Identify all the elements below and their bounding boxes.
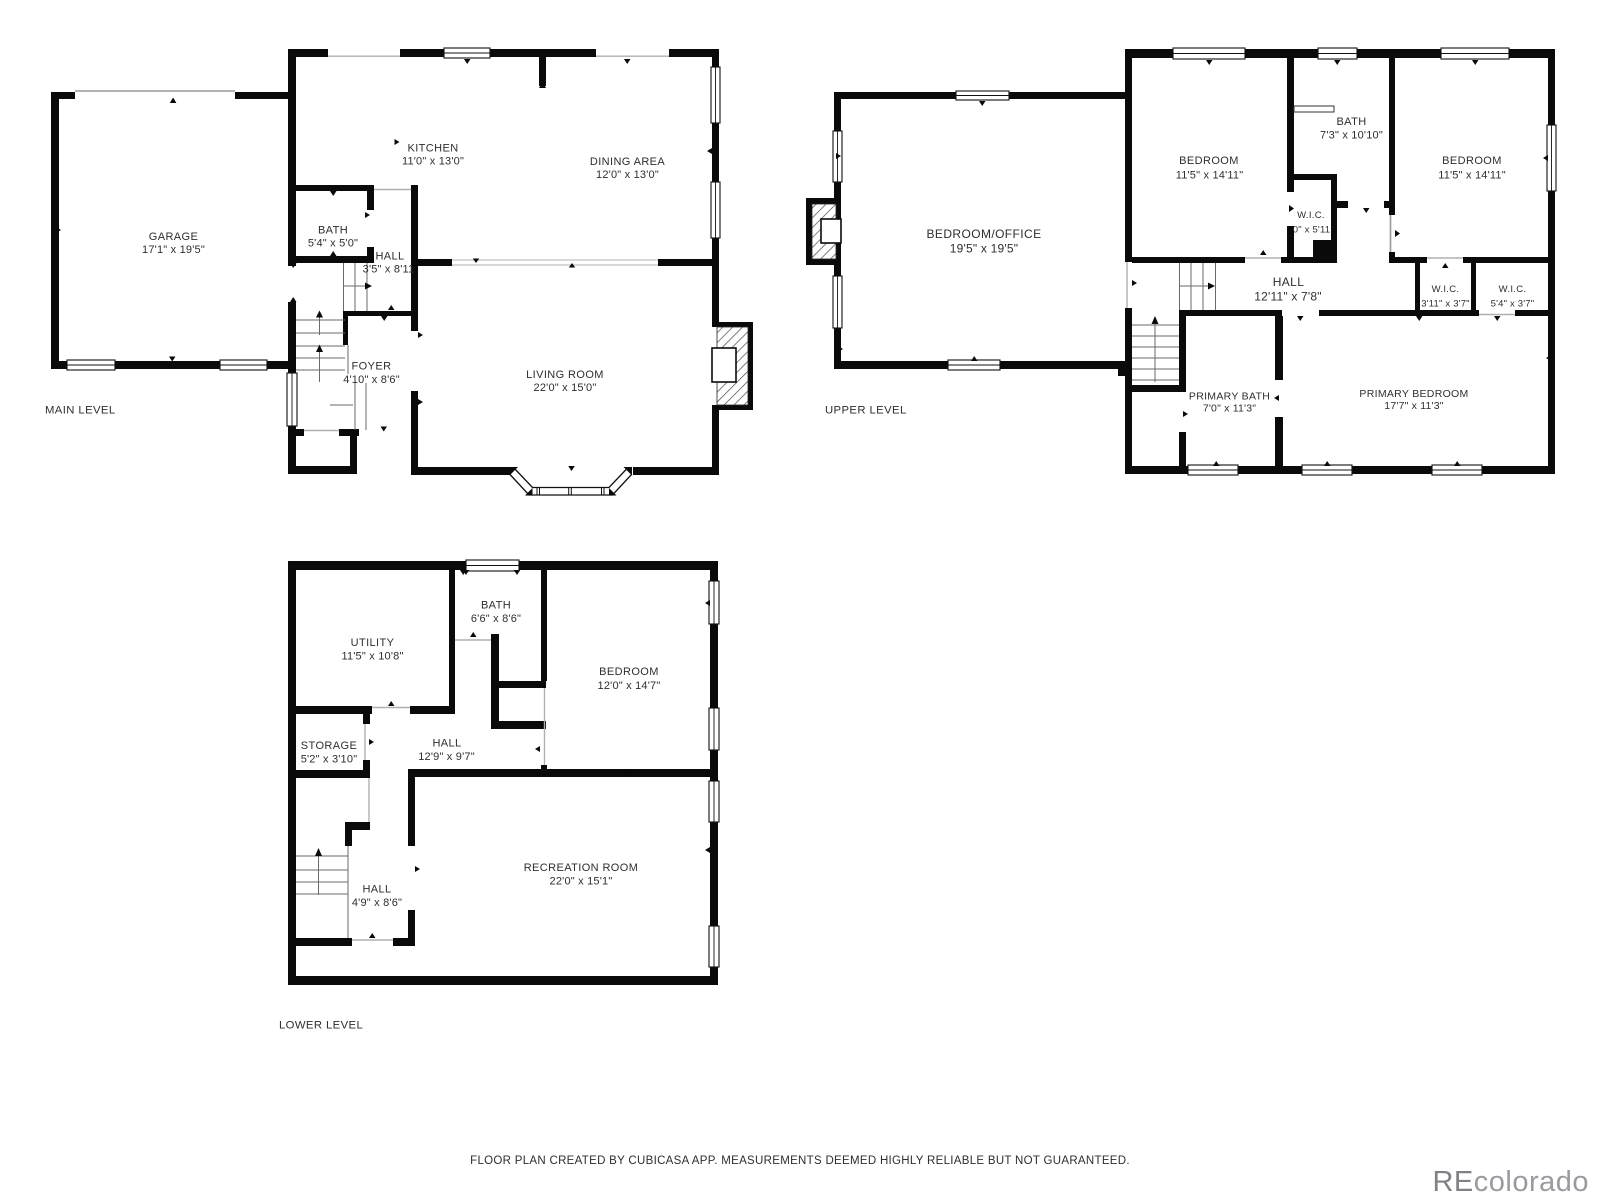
svg-text:0" x 5'11: 0" x 5'11 xyxy=(1293,225,1330,236)
svg-text:BATH: BATH xyxy=(318,225,348,237)
svg-text:BEDROOM/OFFICE: BEDROOM/OFFICE xyxy=(927,227,1042,241)
svg-text:5'4" x 5'0": 5'4" x 5'0" xyxy=(308,238,358,250)
svg-text:FOYER: FOYER xyxy=(352,361,392,373)
svg-text:4'9" x 8'6": 4'9" x 8'6" xyxy=(352,897,402,909)
svg-text:11'5" x 14'11": 11'5" x 14'11" xyxy=(1176,170,1244,182)
svg-text:11'0" x 13'0": 11'0" x 13'0" xyxy=(402,156,464,168)
svg-text:HALL: HALL xyxy=(1273,275,1305,289)
svg-text:3'5" x 8'11: 3'5" x 8'11 xyxy=(363,264,415,276)
svg-text:12'0" x 13'0": 12'0" x 13'0" xyxy=(596,169,659,181)
svg-text:GARAGE: GARAGE xyxy=(149,231,198,243)
svg-text:17'1" x 19'5": 17'1" x 19'5" xyxy=(142,244,205,256)
svg-text:BATH: BATH xyxy=(481,600,511,612)
svg-text:STORAGE: STORAGE xyxy=(301,740,357,752)
svg-text:HALL: HALL xyxy=(362,884,391,896)
svg-text:12'0" x 14'7": 12'0" x 14'7" xyxy=(598,680,661,692)
svg-text:7'0" x 11'3": 7'0" x 11'3" xyxy=(1203,403,1256,415)
svg-text:UPPER LEVEL: UPPER LEVEL xyxy=(825,405,907,417)
svg-text:BEDROOM: BEDROOM xyxy=(1179,155,1239,167)
svg-text:KITCHEN: KITCHEN xyxy=(407,143,458,155)
svg-text:22'0" x 15'1": 22'0" x 15'1" xyxy=(550,876,613,888)
svg-text:FLOOR PLAN CREATED BY CUBICASA: FLOOR PLAN CREATED BY CUBICASA APP. MEAS… xyxy=(470,1155,1130,1167)
svg-text:19'5" x 19'5": 19'5" x 19'5" xyxy=(950,242,1018,256)
svg-text:12'11" x 7'8": 12'11" x 7'8" xyxy=(1254,290,1322,304)
svg-text:22'0" x 15'0": 22'0" x 15'0" xyxy=(534,382,597,394)
svg-text:12'9" x 9'7": 12'9" x 9'7" xyxy=(418,751,475,763)
svg-text:5'4" x 3'7": 5'4" x 3'7" xyxy=(1491,299,1535,310)
svg-text:HALL: HALL xyxy=(375,251,404,263)
svg-text:LIVING ROOM: LIVING ROOM xyxy=(526,369,604,381)
svg-text:BATH: BATH xyxy=(1336,116,1366,128)
svg-text:W.I.C.: W.I.C. xyxy=(1432,284,1460,295)
svg-text:BEDROOM: BEDROOM xyxy=(599,666,659,678)
svg-text:5'2" x 3'10": 5'2" x 3'10" xyxy=(301,754,358,766)
svg-text:11'5" x 10'8": 11'5" x 10'8" xyxy=(341,651,403,663)
svg-text:DINING AREA: DINING AREA xyxy=(590,156,666,168)
svg-text:PRIMARY BEDROOM: PRIMARY BEDROOM xyxy=(1359,388,1468,400)
svg-text:REcolorado: REcolorado xyxy=(1432,1166,1589,1198)
svg-text:HALL: HALL xyxy=(432,738,461,750)
svg-text:PRIMARY BATH: PRIMARY BATH xyxy=(1189,391,1270,403)
svg-text:11'5" x 14'11": 11'5" x 14'11" xyxy=(1438,170,1506,182)
svg-text:UTILITY: UTILITY xyxy=(351,637,395,649)
svg-text:7'3" x 10'10": 7'3" x 10'10" xyxy=(1320,130,1383,142)
svg-text:RECREATION ROOM: RECREATION ROOM xyxy=(524,862,639,874)
svg-text:6'6" x 8'6": 6'6" x 8'6" xyxy=(471,613,521,625)
svg-text:17'7" x 11'3": 17'7" x 11'3" xyxy=(1384,400,1443,412)
svg-text:MAIN LEVEL: MAIN LEVEL xyxy=(45,405,116,417)
svg-text:3'11" x 3'7": 3'11" x 3'7" xyxy=(1421,299,1470,310)
svg-text:4'10" x 8'6": 4'10" x 8'6" xyxy=(343,374,400,386)
svg-text:LOWER LEVEL: LOWER LEVEL xyxy=(279,1020,363,1032)
svg-text:W.I.C.: W.I.C. xyxy=(1297,210,1325,221)
svg-text:BEDROOM: BEDROOM xyxy=(1442,155,1502,167)
svg-text:W.I.C.: W.I.C. xyxy=(1499,284,1527,295)
